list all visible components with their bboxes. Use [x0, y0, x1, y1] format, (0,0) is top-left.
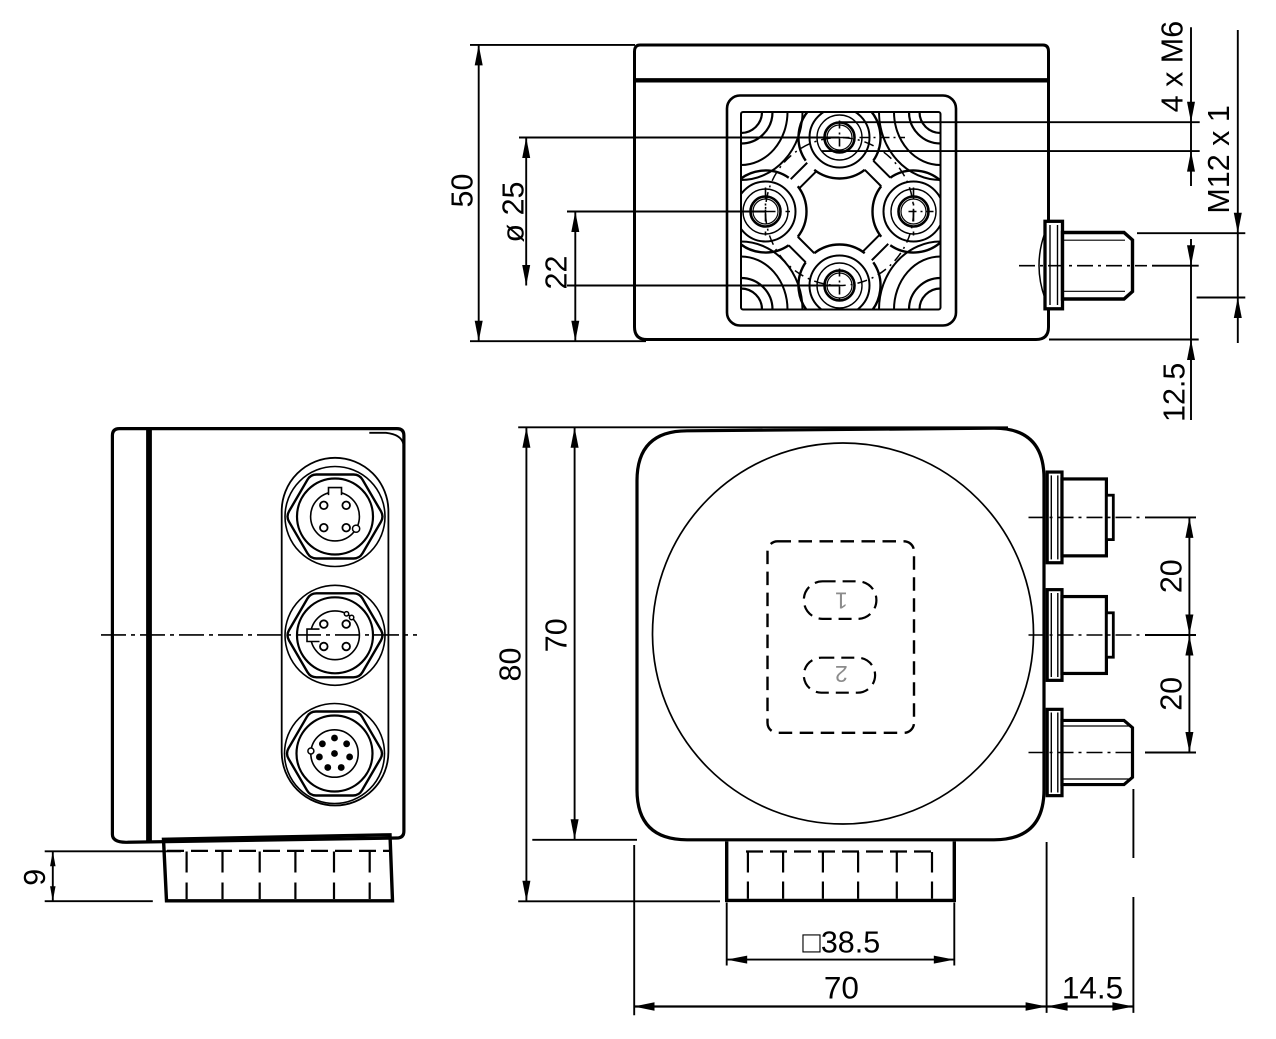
- svg-text:50: 50: [446, 174, 480, 208]
- svg-text:14.5: 14.5: [1062, 970, 1123, 1006]
- svg-text:12.5: 12.5: [1157, 363, 1191, 422]
- svg-text:70: 70: [824, 970, 859, 1006]
- svg-text:20: 20: [1154, 559, 1188, 593]
- svg-text:20: 20: [1154, 677, 1188, 711]
- svg-text:1: 1: [835, 588, 848, 614]
- svg-text:70: 70: [540, 618, 574, 652]
- svg-text:22: 22: [540, 256, 574, 290]
- svg-text:ø 25: ø 25: [497, 181, 531, 242]
- svg-text:2: 2: [835, 661, 848, 687]
- svg-text:4 x M6: 4 x M6: [1155, 21, 1189, 113]
- svg-text:9: 9: [18, 869, 52, 886]
- svg-text:80: 80: [494, 648, 528, 682]
- svg-text:□38.5: □38.5: [802, 926, 880, 960]
- svg-text:M12 x 1: M12 x 1: [1202, 105, 1236, 214]
